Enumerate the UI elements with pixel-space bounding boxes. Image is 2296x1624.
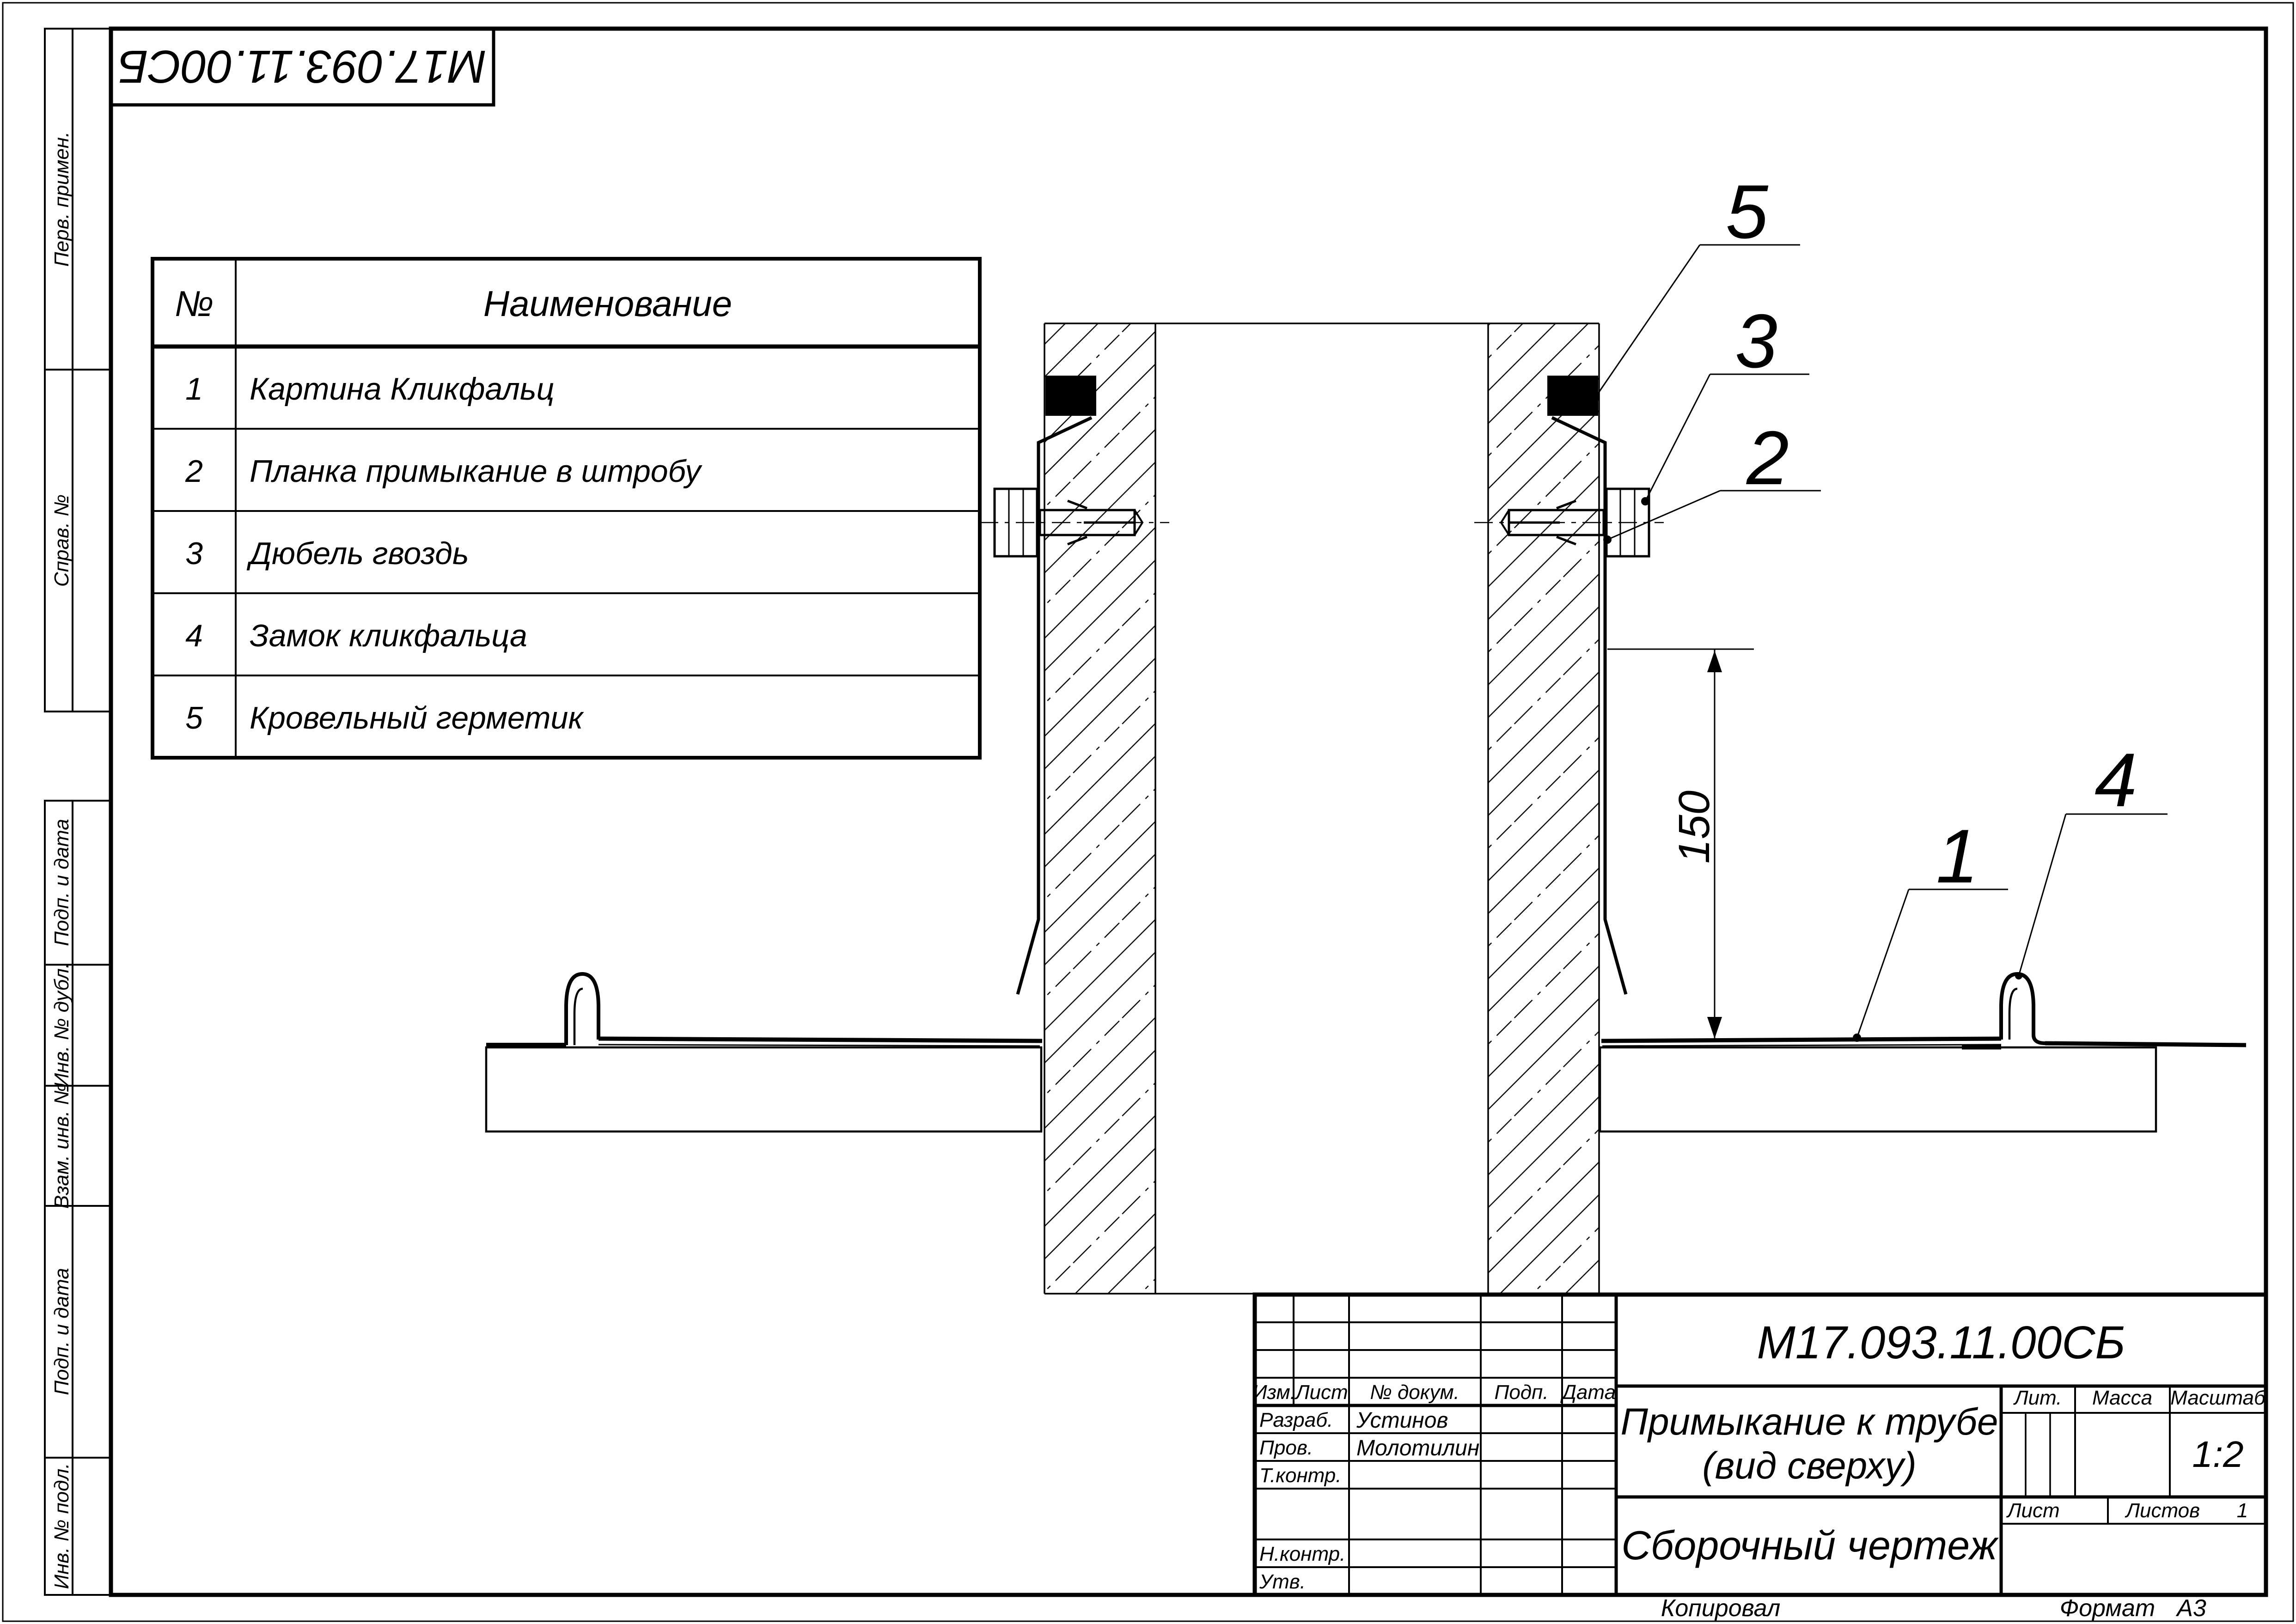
doc-code-box: М17.093.11.00СБ xyxy=(111,29,494,105)
callout-1: 1 xyxy=(1853,814,2008,1042)
tb-label-massa: Масса xyxy=(2092,1387,2152,1409)
seam-right xyxy=(2001,974,2045,1043)
part-num: 4 xyxy=(185,618,203,653)
tb-doc-code: М17.093.11.00СБ xyxy=(1757,1317,2125,1369)
pipe-section xyxy=(1044,323,1599,1294)
tb-label-lit: Лит. xyxy=(2013,1387,2062,1409)
table-row: 2 Планка примыкание в штробу xyxy=(185,454,702,489)
seam-left xyxy=(566,974,598,1045)
sheet-right-outer xyxy=(2045,1043,2246,1045)
stamp-sprav-n: Справ. № xyxy=(45,370,111,712)
tb-label-dokum: № докум. xyxy=(1370,1381,1459,1404)
assembly-drawing: 150 5 3 2 1 4 xyxy=(486,169,2246,1294)
footer-format-value: А3 xyxy=(2175,1595,2206,1622)
callout-2: 2 xyxy=(1603,415,1821,544)
sheet-left xyxy=(598,1039,1042,1041)
roof-left xyxy=(486,974,1042,1131)
part-name: Дюбель гвоздь xyxy=(246,536,469,571)
tb-label-tkontr: Т.контр. xyxy=(1259,1464,1342,1487)
callout-number: 2 xyxy=(1746,415,1789,500)
callout-number: 1 xyxy=(1936,814,1978,899)
sealant-left xyxy=(1045,376,1096,416)
dim-arrow-up xyxy=(1707,651,1722,672)
tb-scale-value: 1:2 xyxy=(2192,1434,2243,1475)
sheet-right-underline xyxy=(1602,1045,2001,1046)
tb-label-podp: Подп. xyxy=(1494,1381,1548,1404)
dim-arrow-down xyxy=(1707,1017,1722,1039)
callout-leader xyxy=(1607,491,1720,540)
tb-label-listov: Листов xyxy=(2125,1499,2200,1522)
callout-dot xyxy=(1591,393,1600,401)
drawing-sheet: Перв. примен. Справ. № Подп. и дата Инв.… xyxy=(0,0,2296,1624)
tb-label-list: Лист xyxy=(1294,1381,1348,1404)
stamp-label-podp-data: Подп. и дата xyxy=(50,819,73,946)
sheet-left-underline xyxy=(598,1045,1040,1046)
tb-title-line2: (вид сверху) xyxy=(1702,1445,1917,1487)
seam-left-inner xyxy=(574,989,583,1045)
title-block: Изм. Лист № докум. Подп. Дата Разраб. Ус… xyxy=(1252,1295,2266,1595)
doc-code-rotated: М17.093.11.00СБ xyxy=(118,41,486,92)
parts-table-frame xyxy=(153,259,980,758)
part-num: 3 xyxy=(185,536,203,571)
part-num: 5 xyxy=(185,700,203,736)
roof-board-right xyxy=(1600,1047,2156,1131)
roof-board-left xyxy=(486,1047,1041,1131)
tb-label-data: Дата xyxy=(1560,1381,1616,1404)
part-num: 2 xyxy=(185,454,203,489)
tb-label-izm: Изм. xyxy=(1252,1381,1296,1404)
callout-leader xyxy=(1857,889,1909,1038)
tb-label-nkontr: Н.контр. xyxy=(1259,1543,1345,1565)
callout-dot xyxy=(1853,1034,1861,1042)
footer-format-label: Формат xyxy=(2060,1595,2155,1622)
stamp-podp-data-1: Подп. и дата xyxy=(45,801,111,965)
dimension-150: 150 xyxy=(1607,649,1754,1039)
dim-value: 150 xyxy=(1670,791,1719,864)
callout-dot xyxy=(1641,497,1649,505)
callout-dot xyxy=(2015,972,2022,979)
footer-kopiroval: Копировал xyxy=(1661,1595,1781,1622)
footer: Копировал Формат А3 xyxy=(1661,1595,2206,1622)
stamp-perv-primen: Перв. примен. xyxy=(45,29,111,370)
tb-label-list2: Лист xyxy=(2006,1499,2059,1522)
stamp-podp-data-2: Подп. и дата xyxy=(45,1206,111,1458)
stamp-inv-dubl: Инв. № дубл. xyxy=(45,963,111,1088)
seam-right-inner xyxy=(2009,989,2017,1040)
stamp-label-sprav-n: Справ. № xyxy=(50,494,73,587)
callout-number: 5 xyxy=(1726,169,1769,254)
tb-doc-type: Сборочный чертеж xyxy=(1621,1522,1999,1568)
table-row: 5 Кровельный герметик xyxy=(185,700,584,736)
pipe-right-wall-hatch xyxy=(1488,323,1599,1294)
pipe-left-wall-hatch xyxy=(1044,323,1155,1294)
stamp-label-inv-dubl: Инв. № дубл. xyxy=(50,963,73,1088)
stamp-label-podp-data: Подп. и дата xyxy=(50,1268,73,1395)
stamp-inv-podl: Инв. № подл. xyxy=(45,1458,111,1595)
part-name: Планка примыкание в штробу xyxy=(250,454,702,489)
tb-listov-value: 1 xyxy=(2237,1499,2248,1522)
roof-right xyxy=(1600,974,2246,1131)
tb-label-utv: Утв. xyxy=(1259,1570,1306,1593)
callout-dot xyxy=(1603,535,1612,544)
tb-label-razrab: Разраб. xyxy=(1259,1409,1333,1431)
left-margin-stamps: Перв. примен. Справ. № Подп. и дата Инв.… xyxy=(45,29,111,1595)
parts-header-name: Наименование xyxy=(483,283,732,324)
sealant-right xyxy=(1547,376,1598,416)
stamp-label-vzam-inv: Взам. инв. № xyxy=(50,1083,73,1209)
tb-label-masshtab: Масштаб xyxy=(2170,1387,2266,1409)
table-row: 3 Дюбель гвоздь xyxy=(185,536,469,571)
callout-leader xyxy=(1595,245,1700,397)
tb-value-prov: Молотилин xyxy=(1356,1436,1479,1460)
sheet-right xyxy=(1601,1039,2001,1041)
tb-label-prov: Пров. xyxy=(1259,1436,1313,1459)
stamp-vzam-inv: Взам. инв. № xyxy=(45,1083,111,1209)
stamp-label-inv-podl: Инв. № подл. xyxy=(50,1463,73,1589)
table-row: 1 Картина Кликфальц xyxy=(185,371,554,407)
part-name: Замок кликфальца xyxy=(250,618,527,653)
callout-number: 4 xyxy=(2094,737,2137,822)
part-name: Кровельный герметик xyxy=(250,700,584,736)
callout-number: 3 xyxy=(1735,298,1777,383)
parts-table: № Наименование 1 Картина Кликфальц 2 Пла… xyxy=(153,259,980,758)
stamp-label-perv-primen: Перв. примен. xyxy=(50,132,73,267)
callout-leader xyxy=(1645,374,1710,501)
callout-leader xyxy=(2019,814,2066,976)
table-row: 4 Замок кликфальца xyxy=(185,618,527,653)
part-num: 1 xyxy=(185,371,203,407)
tb-value-razrab: Устинов xyxy=(1356,1408,1448,1433)
tb-title-line1: Примыкание к трубе xyxy=(1621,1401,1998,1443)
part-name: Картина Кликфальц xyxy=(250,371,555,407)
parts-header-num: № xyxy=(175,283,214,324)
callout-4: 4 xyxy=(2015,737,2168,979)
